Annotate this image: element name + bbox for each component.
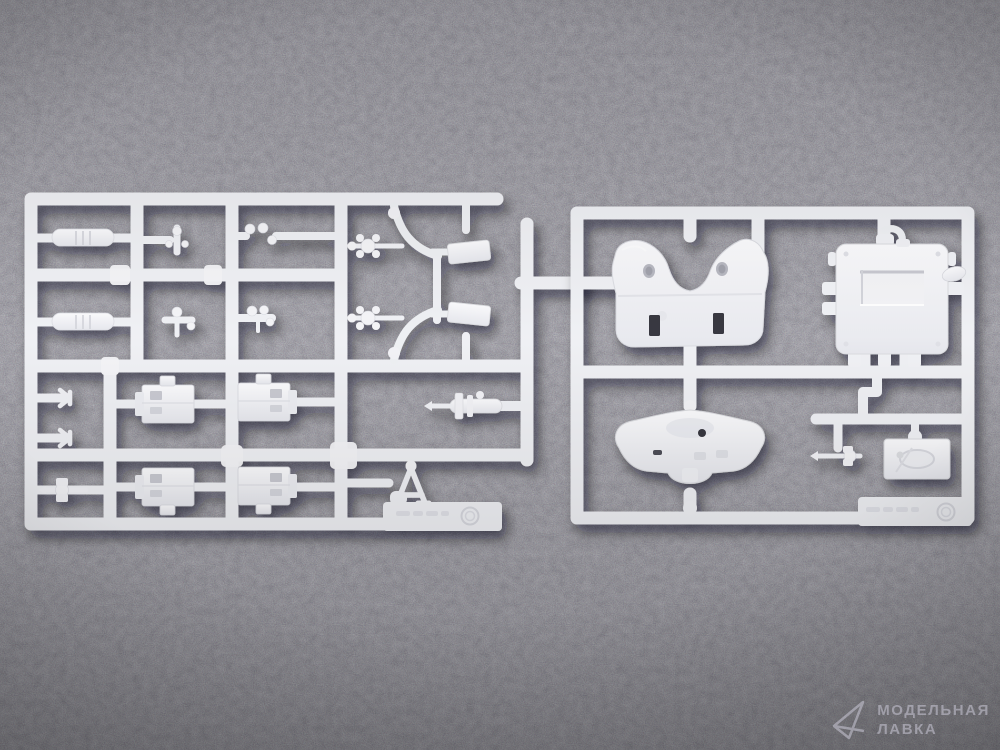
watermark-logo-icon — [830, 698, 868, 742]
watermark-line1: МОДЕЛЬНАЯ — [877, 701, 990, 721]
scene-graphic — [0, 0, 1000, 750]
sprue-bulb — [683, 501, 697, 515]
plate-part — [884, 439, 950, 479]
muffler-part — [52, 313, 114, 330]
watermark: МОДЕЛЬНАЯ ЛАВКА — [830, 698, 990, 742]
watermark-text: МОДЕЛЬНАЯ ЛАВКА — [877, 701, 990, 740]
muffler-part — [52, 229, 114, 246]
engine-block-part — [822, 234, 964, 367]
watermark-line2: ЛАВКА — [877, 720, 990, 740]
mold-stamp-right — [858, 497, 972, 526]
photo-stage: МОДЕЛЬНАЯ ЛАВКА — [0, 0, 1000, 750]
